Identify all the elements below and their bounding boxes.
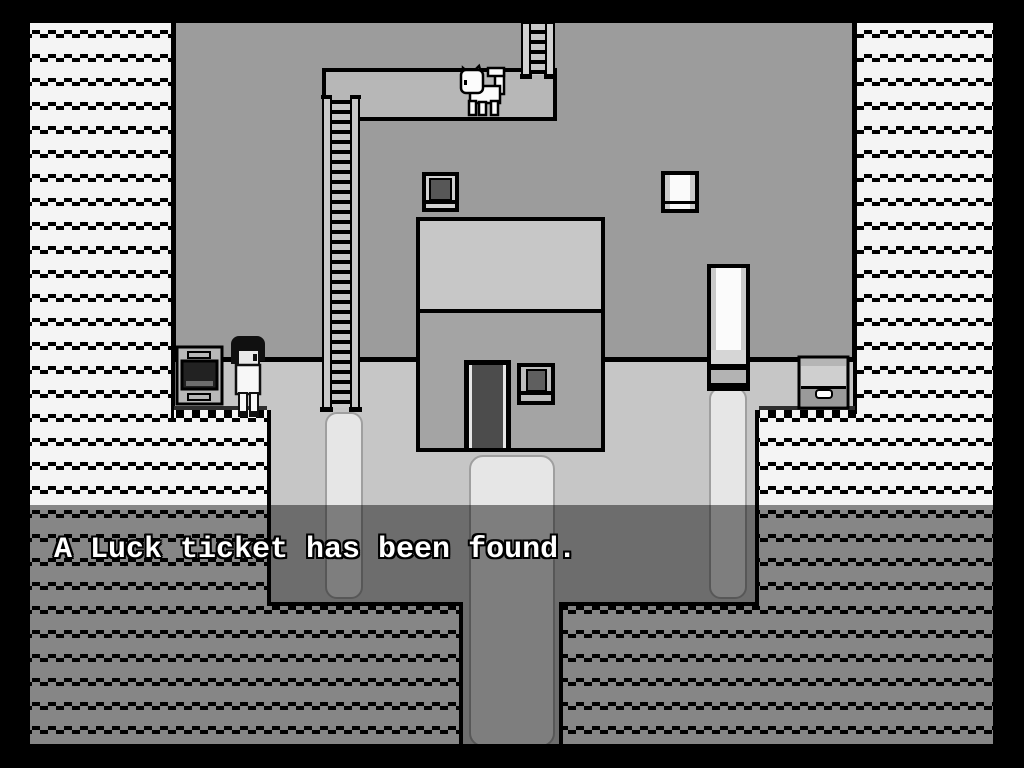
- roof-ladder: [520, 23, 556, 79]
- game-canvas[interactable]: [0, 0, 1024, 768]
- wall-right-border: [852, 23, 857, 414]
- tall-white-door: [707, 264, 750, 391]
- house-roof: [420, 221, 601, 309]
- house: [416, 217, 605, 452]
- white-wall-window: [661, 171, 699, 213]
- stove: [177, 347, 222, 404]
- long-ladder: [320, 95, 362, 412]
- house-window: [517, 363, 555, 405]
- dark-wall-window: [422, 172, 459, 212]
- game-screen[interactable]: A Luck ticket has been found.: [0, 0, 1024, 768]
- treasure-chest: [799, 357, 848, 408]
- house-door: [464, 360, 511, 452]
- dim-overlay: [30, 505, 993, 744]
- wall-left-border: [171, 23, 176, 414]
